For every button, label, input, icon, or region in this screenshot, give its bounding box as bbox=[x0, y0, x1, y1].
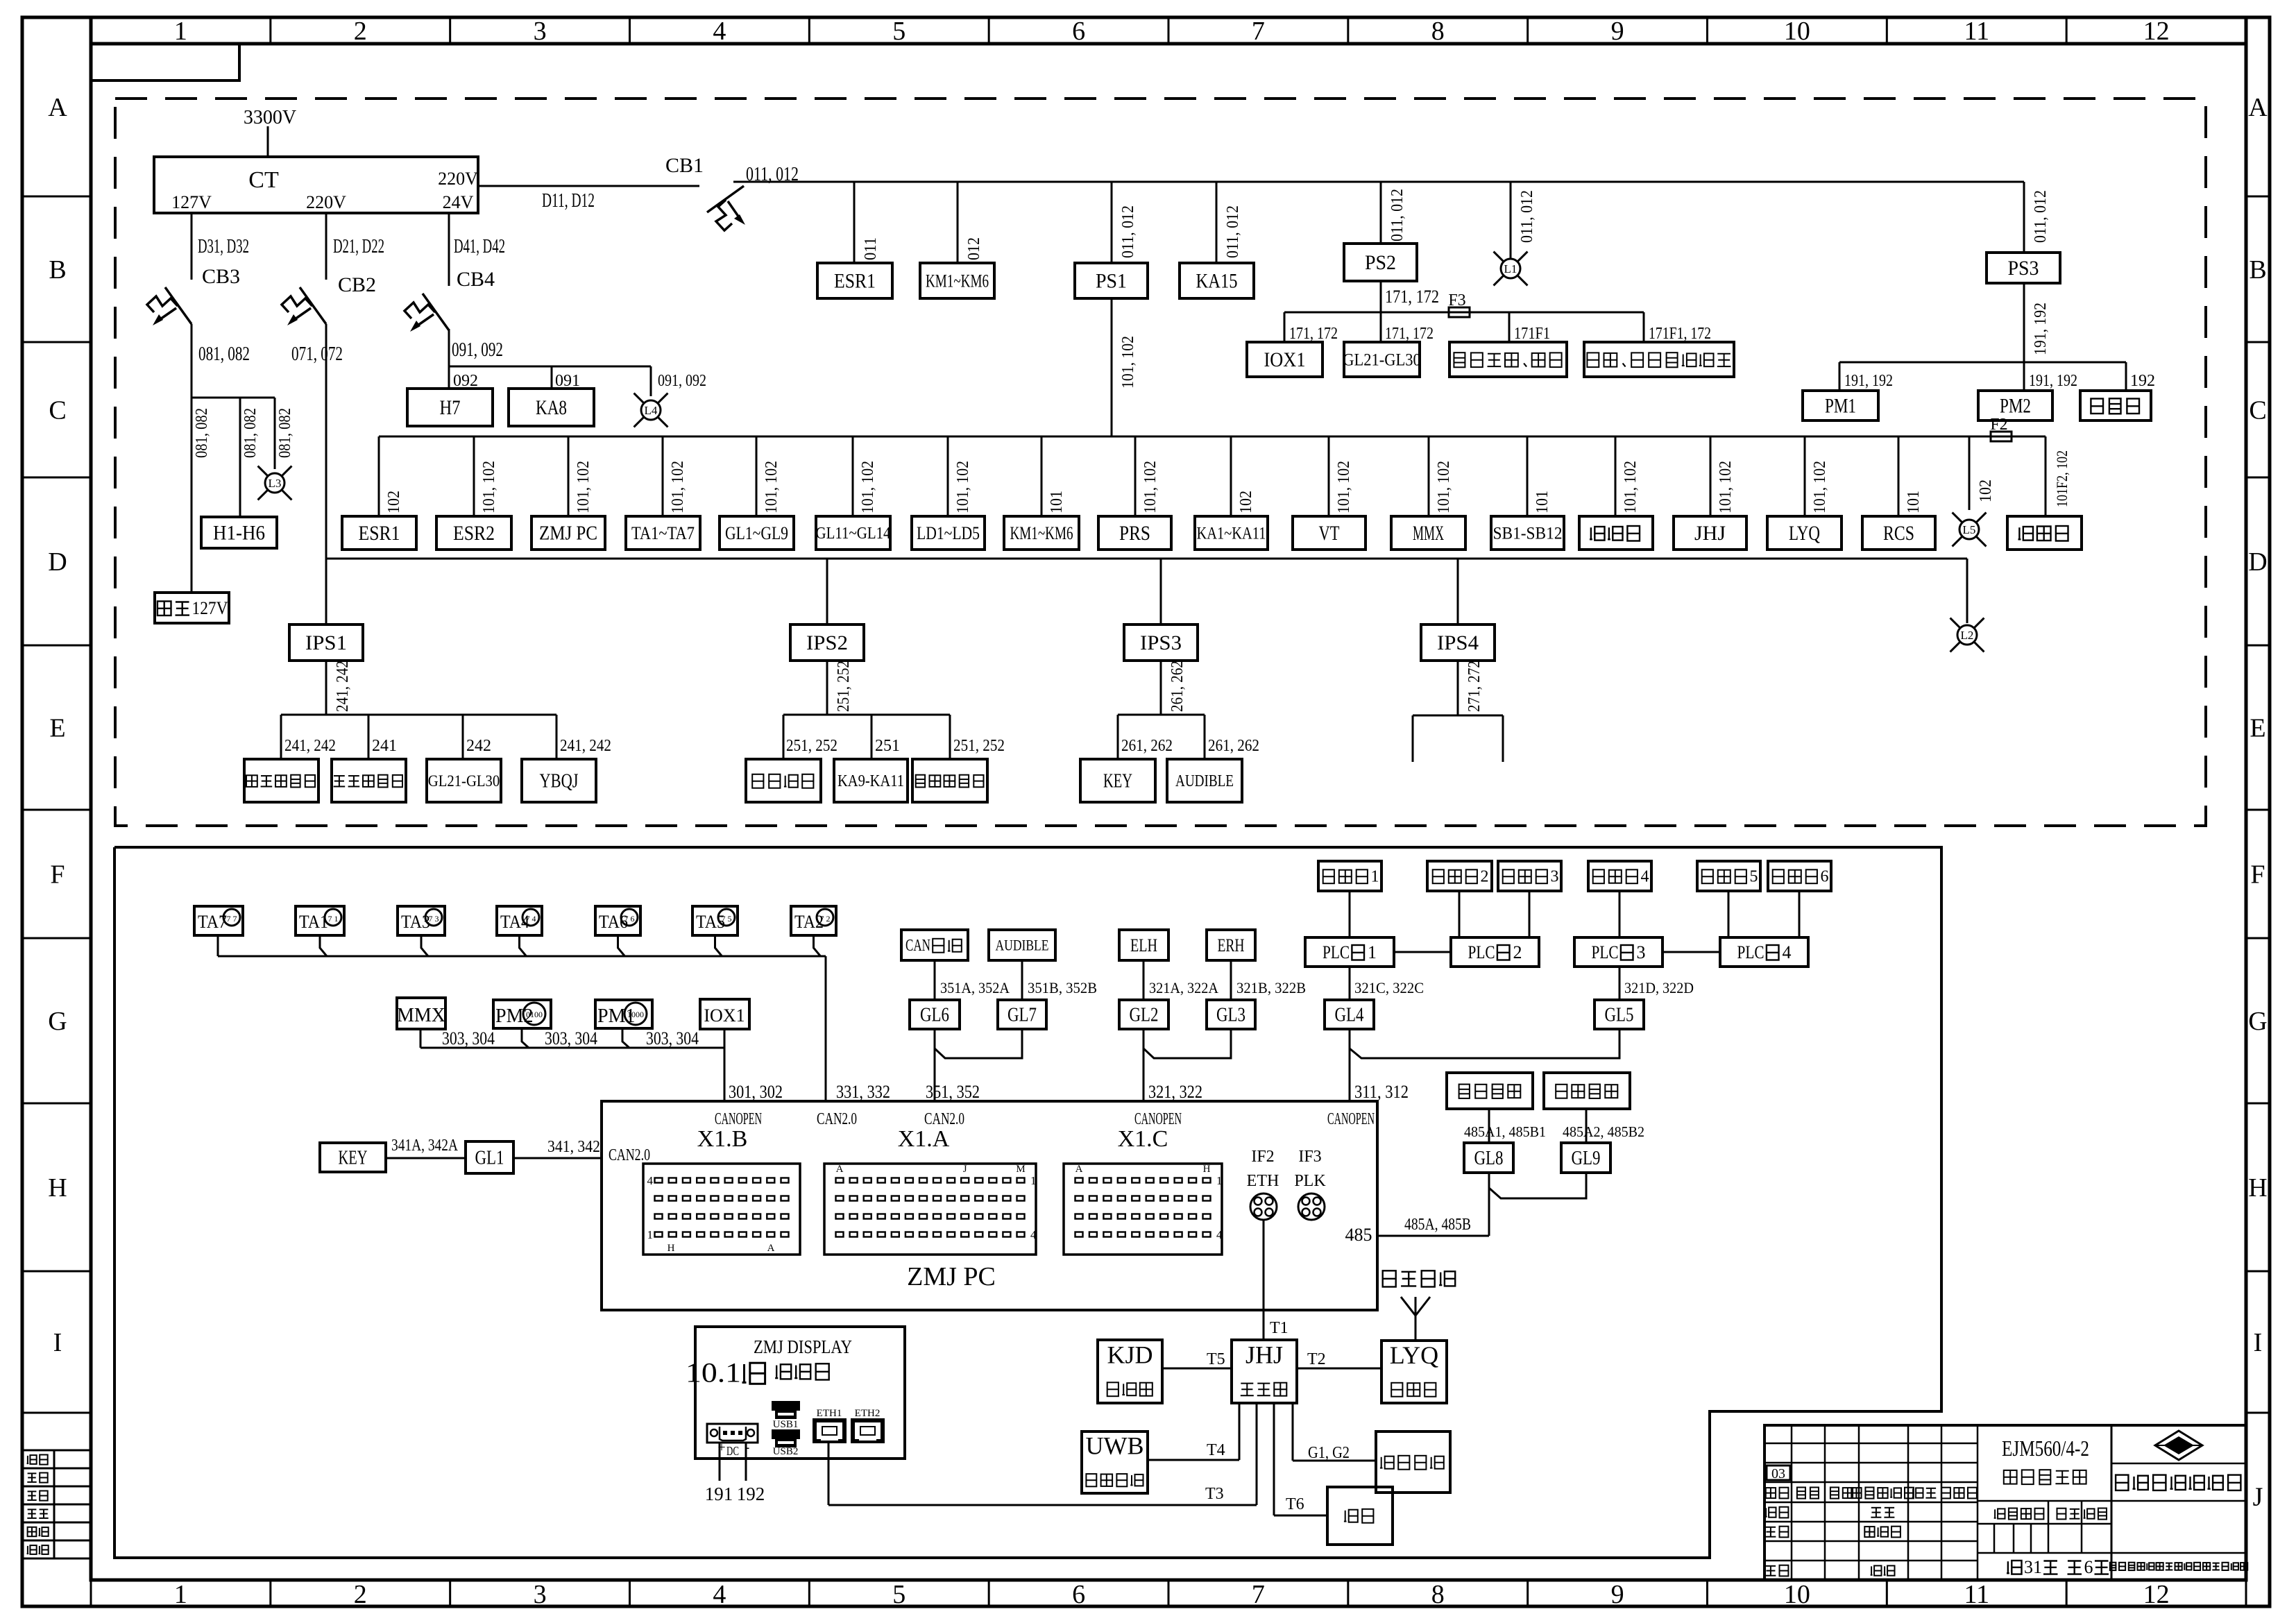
svg-text:IPS3: IPS3 bbox=[1140, 631, 1182, 654]
svg-text:J: J bbox=[963, 1164, 967, 1175]
svg-text:H: H bbox=[2248, 1173, 2267, 1203]
svg-text:241: 241 bbox=[372, 737, 397, 755]
svg-text:F: F bbox=[50, 860, 65, 890]
svg-text:127V: 127V bbox=[171, 192, 212, 212]
svg-text:171F1, 172: 171F1, 172 bbox=[1649, 325, 1711, 343]
svg-text:301, 302: 301, 302 bbox=[729, 1082, 783, 1102]
svg-text:1000: 1000 bbox=[627, 1010, 644, 1019]
svg-text:7 2: 7 2 bbox=[820, 914, 831, 924]
svg-text:6: 6 bbox=[1821, 868, 1829, 886]
svg-text:321C, 322C: 321C, 322C bbox=[1354, 979, 1424, 996]
svg-text:251, 252: 251, 252 bbox=[835, 661, 853, 712]
svg-text:192: 192 bbox=[2130, 372, 2155, 390]
svg-text:SB1-SB12: SB1-SB12 bbox=[1493, 525, 1563, 543]
svg-text:PLC: PLC bbox=[1592, 942, 1619, 962]
svg-text:011, 012: 011, 012 bbox=[1119, 205, 1137, 258]
svg-text:485A1, 485B1: 485A1, 485B1 bbox=[1464, 1123, 1546, 1140]
svg-text:485A2, 485B2: 485A2, 485B2 bbox=[1563, 1123, 1644, 1140]
svg-text:JHJ: JHJ bbox=[1245, 1341, 1283, 1369]
svg-text:101, 102: 101, 102 bbox=[1119, 336, 1137, 389]
svg-text:081, 082: 081, 082 bbox=[198, 343, 250, 365]
svg-text:ESR2: ESR2 bbox=[453, 522, 495, 545]
svg-text:3: 3 bbox=[534, 17, 547, 46]
svg-text:L5: L5 bbox=[1963, 523, 1976, 536]
svg-text:GL3: GL3 bbox=[1216, 1005, 1245, 1026]
svg-text:PS2: PS2 bbox=[1365, 251, 1396, 274]
svg-text:ZMJ PC: ZMJ PC bbox=[907, 1262, 996, 1291]
svg-text:KA8: KA8 bbox=[536, 396, 567, 419]
svg-text:351A, 352A: 351A, 352A bbox=[940, 979, 1010, 996]
svg-text:251: 251 bbox=[875, 737, 900, 755]
svg-text:IPS4: IPS4 bbox=[1437, 631, 1479, 654]
svg-text:101, 102: 101, 102 bbox=[480, 461, 498, 513]
svg-text:KEY: KEY bbox=[339, 1148, 368, 1169]
svg-text:5: 5 bbox=[892, 17, 905, 46]
svg-text:101, 102: 101, 102 bbox=[1811, 461, 1829, 513]
svg-text:EJM560/4-2: EJM560/4-2 bbox=[2002, 1436, 2089, 1461]
svg-text:4: 4 bbox=[713, 17, 726, 46]
svg-text:F: F bbox=[2250, 860, 2265, 890]
svg-text:03: 03 bbox=[1771, 1466, 1785, 1481]
svg-text:YBQJ: YBQJ bbox=[540, 771, 579, 792]
svg-text:CB4: CB4 bbox=[457, 268, 495, 291]
svg-text:311, 312: 311, 312 bbox=[1354, 1082, 1409, 1102]
svg-text:IOX1: IOX1 bbox=[1264, 348, 1306, 371]
svg-text:D: D bbox=[2248, 547, 2267, 577]
svg-text:12: 12 bbox=[2143, 1580, 2170, 1609]
svg-text:2: 2 bbox=[1513, 942, 1522, 962]
svg-text:H1-H6: H1-H6 bbox=[213, 522, 265, 545]
svg-text:ESR1: ESR1 bbox=[359, 522, 400, 545]
svg-text:LD1~LD5: LD1~LD5 bbox=[917, 523, 980, 543]
svg-text:KEY: KEY bbox=[1103, 771, 1132, 792]
svg-text:011, 012: 011, 012 bbox=[2032, 190, 2050, 243]
svg-text:11: 11 bbox=[1964, 17, 1990, 46]
svg-text:261, 262: 261, 262 bbox=[1121, 737, 1173, 755]
svg-text:AUDIBLE: AUDIBLE bbox=[996, 937, 1049, 954]
svg-text:B: B bbox=[2249, 255, 2266, 284]
svg-text:IPS1: IPS1 bbox=[305, 631, 347, 654]
svg-text:171F1: 171F1 bbox=[1514, 325, 1550, 343]
svg-text:341A, 342A: 341A, 342A bbox=[391, 1137, 459, 1155]
svg-text:T1: T1 bbox=[1270, 1319, 1289, 1337]
svg-text:I: I bbox=[53, 1328, 62, 1357]
svg-text:011, 012: 011, 012 bbox=[1518, 190, 1536, 243]
svg-text:DC: DC bbox=[726, 1444, 739, 1458]
svg-text:101: 101 bbox=[1048, 491, 1066, 513]
svg-text:101, 102: 101, 102 bbox=[954, 461, 972, 513]
svg-text:7 4: 7 4 bbox=[526, 914, 536, 924]
svg-text:485: 485 bbox=[1345, 1225, 1372, 1245]
svg-text:PS1: PS1 bbox=[1096, 270, 1127, 293]
svg-text:PM1: PM1 bbox=[1825, 395, 1856, 418]
svg-text:A: A bbox=[836, 1164, 844, 1175]
svg-text:011: 011 bbox=[862, 237, 880, 260]
svg-text:3: 3 bbox=[1551, 868, 1559, 886]
svg-text:USB1: USB1 bbox=[773, 1419, 799, 1430]
svg-text:7 5: 7 5 bbox=[722, 914, 732, 924]
svg-text:AUDIBLE: AUDIBLE bbox=[1175, 772, 1234, 790]
svg-text:7: 7 bbox=[1252, 17, 1265, 46]
svg-text:101, 102: 101, 102 bbox=[859, 461, 877, 513]
svg-text:D41, D42: D41, D42 bbox=[454, 236, 505, 257]
svg-text:4: 4 bbox=[1641, 868, 1649, 886]
svg-text:D: D bbox=[48, 547, 67, 577]
svg-text:101, 102: 101, 102 bbox=[1622, 461, 1640, 513]
svg-text:102: 102 bbox=[1237, 491, 1255, 513]
svg-text:101, 102: 101, 102 bbox=[1335, 461, 1353, 513]
svg-text:303, 304: 303, 304 bbox=[545, 1028, 597, 1048]
svg-text:251, 252: 251, 252 bbox=[786, 737, 837, 755]
svg-text:X1.C: X1.C bbox=[1118, 1126, 1168, 1152]
svg-text:31: 31 bbox=[2024, 1557, 2042, 1577]
svg-text:4: 4 bbox=[713, 1580, 726, 1609]
svg-text:B: B bbox=[49, 255, 66, 284]
svg-text:ERH: ERH bbox=[1218, 935, 1245, 955]
svg-text:1: 1 bbox=[174, 1580, 187, 1609]
svg-text:PM2: PM2 bbox=[2000, 395, 2031, 418]
svg-text:ETH2: ETH2 bbox=[855, 1408, 881, 1419]
svg-text:GL4: GL4 bbox=[1335, 1005, 1364, 1026]
svg-text:F3: F3 bbox=[1448, 291, 1465, 309]
svg-text:102: 102 bbox=[385, 491, 403, 513]
svg-text:M: M bbox=[1016, 1164, 1025, 1175]
svg-text:GL9: GL9 bbox=[1572, 1148, 1601, 1169]
svg-text:CT: CT bbox=[248, 167, 279, 193]
svg-text:LYQ: LYQ bbox=[1390, 1341, 1438, 1369]
svg-text:3: 3 bbox=[1637, 942, 1646, 962]
svg-text:RCS: RCS bbox=[1883, 522, 1914, 545]
svg-text:MMX: MMX bbox=[1413, 522, 1444, 545]
svg-text:10: 10 bbox=[1784, 17, 1810, 46]
svg-text:4: 4 bbox=[1216, 1228, 1223, 1241]
svg-text:321B, 322B: 321B, 322B bbox=[1236, 979, 1306, 996]
svg-text:A: A bbox=[2248, 93, 2268, 122]
svg-text:G1, G2: G1, G2 bbox=[1308, 1444, 1350, 1462]
svg-text:241, 242: 241, 242 bbox=[284, 737, 336, 755]
svg-text:IOX1: IOX1 bbox=[704, 1005, 745, 1026]
svg-text:E: E bbox=[2250, 714, 2265, 743]
svg-text:T3: T3 bbox=[1205, 1485, 1224, 1503]
svg-text:9: 9 bbox=[1611, 17, 1624, 46]
svg-text:6: 6 bbox=[1072, 17, 1085, 46]
svg-text:331, 332: 331, 332 bbox=[836, 1082, 890, 1102]
svg-text:101, 102: 101, 102 bbox=[669, 461, 687, 513]
svg-text:H: H bbox=[1203, 1164, 1211, 1175]
svg-text:D21, D22: D21, D22 bbox=[333, 236, 384, 257]
svg-text:KM1~KM6: KM1~KM6 bbox=[1010, 523, 1073, 543]
svg-text:1: 1 bbox=[174, 17, 187, 46]
svg-text:ZMJ PC: ZMJ PC bbox=[539, 523, 597, 545]
svg-text:VT: VT bbox=[1319, 522, 1340, 545]
svg-text:102: 102 bbox=[1977, 479, 1995, 502]
svg-text:CAN2.0: CAN2.0 bbox=[609, 1146, 650, 1164]
svg-text:12: 12 bbox=[2143, 17, 2170, 46]
svg-text:KA1~KA11: KA1~KA11 bbox=[1197, 525, 1266, 543]
svg-text:242: 242 bbox=[466, 737, 491, 755]
svg-text:011, 012: 011, 012 bbox=[1388, 189, 1406, 241]
svg-text:CB2: CB2 bbox=[338, 273, 376, 296]
svg-text:191, 192: 191, 192 bbox=[2032, 303, 2050, 355]
svg-text:191, 192: 191, 192 bbox=[1844, 372, 1893, 390]
svg-text:CAN: CAN bbox=[905, 937, 930, 955]
svg-text:GL5: GL5 bbox=[1605, 1005, 1634, 1026]
svg-text:9: 9 bbox=[1611, 1580, 1624, 1609]
svg-text:7 1: 7 1 bbox=[328, 914, 339, 924]
svg-text:4: 4 bbox=[1030, 1228, 1037, 1241]
svg-text:L4: L4 bbox=[645, 404, 658, 417]
svg-text:LYQ: LYQ bbox=[1789, 522, 1820, 545]
svg-text:127V: 127V bbox=[192, 598, 228, 618]
svg-text:G: G bbox=[2248, 1007, 2267, 1036]
svg-text:5: 5 bbox=[892, 1580, 905, 1609]
svg-text:191: 191 bbox=[705, 1484, 733, 1504]
svg-text:485A, 485B: 485A, 485B bbox=[1404, 1216, 1471, 1234]
svg-text:I: I bbox=[2254, 1328, 2263, 1357]
svg-text:101, 102: 101, 102 bbox=[575, 461, 593, 513]
svg-text:GL2: GL2 bbox=[1130, 1005, 1159, 1026]
svg-text:271, 272: 271, 272 bbox=[1465, 661, 1483, 712]
svg-text:351, 352: 351, 352 bbox=[926, 1082, 980, 1102]
svg-text:CB3: CB3 bbox=[202, 265, 240, 288]
svg-text:IPS2: IPS2 bbox=[806, 631, 848, 654]
svg-text:T4: T4 bbox=[1207, 1441, 1225, 1459]
svg-text:D31, D32: D31, D32 bbox=[198, 236, 249, 257]
svg-text:GL7: GL7 bbox=[1007, 1005, 1037, 1026]
svg-text:PLC: PLC bbox=[1468, 942, 1495, 962]
svg-text:3: 3 bbox=[534, 1580, 547, 1609]
svg-text:T5: T5 bbox=[1207, 1350, 1225, 1368]
svg-text:KA9-KA11: KA9-KA11 bbox=[837, 772, 904, 790]
svg-text:091, 092: 091, 092 bbox=[658, 372, 706, 390]
svg-text:191, 192: 191, 192 bbox=[2029, 372, 2077, 390]
svg-text:081, 082: 081, 082 bbox=[193, 408, 211, 458]
svg-text:IF2: IF2 bbox=[1251, 1148, 1274, 1166]
svg-text:CB1: CB1 bbox=[665, 154, 704, 177]
svg-text:5: 5 bbox=[1750, 868, 1758, 886]
svg-text:E: E bbox=[49, 714, 65, 743]
svg-text:ETH1: ETH1 bbox=[817, 1408, 842, 1419]
svg-text:10: 10 bbox=[1784, 1580, 1810, 1609]
svg-text:321D, 322D: 321D, 322D bbox=[1624, 979, 1694, 996]
svg-text:PLK: PLK bbox=[1294, 1172, 1326, 1190]
svg-text:8: 8 bbox=[1431, 1580, 1445, 1609]
svg-text:7 3: 7 3 bbox=[429, 914, 439, 924]
svg-text:ESR1: ESR1 bbox=[834, 270, 876, 293]
svg-text:A: A bbox=[1075, 1164, 1083, 1175]
svg-text:C: C bbox=[49, 396, 66, 425]
svg-text:H: H bbox=[667, 1243, 675, 1254]
svg-text:L2: L2 bbox=[1961, 629, 1974, 642]
svg-text:ELH: ELH bbox=[1130, 935, 1157, 955]
svg-text:1: 1 bbox=[647, 1228, 654, 1241]
svg-text:10.1: 10.1 bbox=[686, 1357, 741, 1388]
svg-text:X1.B: X1.B bbox=[697, 1126, 748, 1152]
svg-text:JHJ: JHJ bbox=[1694, 522, 1726, 545]
svg-text:GL8: GL8 bbox=[1474, 1148, 1504, 1169]
svg-text:2: 2 bbox=[1481, 868, 1489, 886]
svg-text:F2: F2 bbox=[1990, 416, 2007, 434]
svg-text:091, 092: 091, 092 bbox=[452, 339, 503, 361]
svg-text:071, 072: 071, 072 bbox=[291, 343, 343, 365]
svg-text:2: 2 bbox=[354, 17, 367, 46]
svg-text:PLC: PLC bbox=[1737, 942, 1764, 962]
svg-text:GL1~GL9: GL1~GL9 bbox=[725, 523, 788, 543]
svg-text:081, 082: 081, 082 bbox=[241, 408, 260, 458]
svg-text:1: 1 bbox=[1216, 1174, 1223, 1187]
svg-text:192: 192 bbox=[737, 1484, 765, 1504]
svg-text:ZMJ DISPLAY: ZMJ DISPLAY bbox=[754, 1336, 852, 1357]
svg-text:A: A bbox=[767, 1243, 775, 1254]
svg-text:220V: 220V bbox=[306, 192, 346, 212]
svg-text:171, 172: 171, 172 bbox=[1385, 287, 1439, 307]
svg-text:1: 1 bbox=[1368, 942, 1377, 962]
svg-text:7: 7 bbox=[1252, 1580, 1265, 1609]
svg-text:4: 4 bbox=[647, 1174, 654, 1187]
svg-text:T2: T2 bbox=[1307, 1350, 1326, 1368]
svg-text:081, 082: 081, 082 bbox=[276, 408, 294, 458]
svg-text:220V: 220V bbox=[438, 169, 478, 189]
svg-text:TA1: TA1 bbox=[299, 912, 328, 932]
svg-text:101, 102: 101, 102 bbox=[1141, 461, 1159, 513]
svg-text:101, 102: 101, 102 bbox=[1435, 461, 1453, 513]
svg-text:H7: H7 bbox=[440, 396, 461, 419]
svg-text:7 7: 7 7 bbox=[227, 914, 237, 924]
svg-text:1: 1 bbox=[1371, 868, 1379, 886]
svg-text:1: 1 bbox=[1030, 1174, 1037, 1187]
svg-text:101, 102: 101, 102 bbox=[763, 461, 781, 513]
svg-text:D11, D12: D11, D12 bbox=[542, 190, 595, 212]
svg-text:6: 6 bbox=[1072, 1580, 1085, 1609]
svg-text:341, 342: 341, 342 bbox=[547, 1138, 600, 1156]
svg-text:J: J bbox=[2253, 1483, 2263, 1512]
svg-text:012: 012 bbox=[965, 237, 983, 260]
svg-text:011, 012: 011, 012 bbox=[1224, 205, 1242, 258]
svg-text:24V: 24V bbox=[443, 192, 474, 212]
svg-text:GL21-GL30: GL21-GL30 bbox=[428, 772, 500, 790]
svg-text:TA7: TA7 bbox=[198, 912, 227, 932]
svg-text:0100: 0100 bbox=[526, 1010, 543, 1019]
svg-text:6: 6 bbox=[2084, 1557, 2093, 1577]
svg-text:CANOPEN: CANOPEN bbox=[1327, 1110, 1375, 1128]
svg-text:303, 304: 303, 304 bbox=[442, 1028, 495, 1048]
svg-text:C: C bbox=[2249, 396, 2266, 425]
svg-text:T6: T6 bbox=[1286, 1495, 1304, 1513]
svg-text:GL1: GL1 bbox=[475, 1148, 504, 1169]
svg-text:PLC: PLC bbox=[1323, 942, 1350, 962]
svg-text:241, 242: 241, 242 bbox=[334, 661, 352, 712]
svg-text:L1: L1 bbox=[1504, 262, 1517, 275]
svg-text:MMX: MMX bbox=[397, 1005, 445, 1026]
svg-text:101: 101 bbox=[1533, 491, 1551, 513]
svg-text:241, 242: 241, 242 bbox=[560, 737, 611, 755]
svg-text:GL21-GL30: GL21-GL30 bbox=[1343, 351, 1421, 370]
svg-text:KM1~KM6: KM1~KM6 bbox=[926, 271, 989, 291]
svg-text:2: 2 bbox=[354, 1580, 367, 1609]
svg-text:KJD: KJD bbox=[1107, 1341, 1153, 1369]
svg-text:11: 11 bbox=[1964, 1580, 1990, 1609]
svg-text:101: 101 bbox=[1905, 491, 1923, 513]
svg-text:PRS: PRS bbox=[1119, 522, 1150, 545]
svg-text:L3: L3 bbox=[269, 477, 282, 490]
svg-text:H: H bbox=[48, 1173, 67, 1203]
svg-text:GL6: GL6 bbox=[920, 1005, 949, 1026]
svg-text:261, 262: 261, 262 bbox=[1168, 661, 1187, 712]
svg-text:USB2: USB2 bbox=[773, 1446, 799, 1457]
svg-text:101, 102: 101, 102 bbox=[1717, 461, 1735, 513]
svg-text:PS3: PS3 bbox=[2008, 257, 2039, 280]
svg-text:101F2, 102: 101F2, 102 bbox=[2053, 450, 2070, 507]
svg-text:KA15: KA15 bbox=[1196, 270, 1238, 293]
svg-text:321A, 322A: 321A, 322A bbox=[1149, 979, 1218, 996]
svg-text:IF3: IF3 bbox=[1298, 1148, 1321, 1166]
svg-text:171, 172: 171, 172 bbox=[1289, 325, 1338, 343]
svg-text:303, 304: 303, 304 bbox=[646, 1028, 699, 1048]
svg-text:X1.A: X1.A bbox=[898, 1126, 950, 1152]
svg-text:171, 172: 171, 172 bbox=[1385, 325, 1434, 343]
svg-text:G: G bbox=[48, 1007, 67, 1036]
svg-text:011, 012: 011, 012 bbox=[746, 164, 799, 185]
svg-text:CAN2.0: CAN2.0 bbox=[817, 1110, 857, 1128]
svg-text:A: A bbox=[48, 93, 67, 122]
svg-text:7 6: 7 6 bbox=[624, 914, 635, 924]
svg-text:261, 262: 261, 262 bbox=[1208, 737, 1259, 755]
svg-text:351B, 352B: 351B, 352B bbox=[1028, 979, 1097, 996]
svg-text:GL11~GL14: GL11~GL14 bbox=[816, 525, 891, 543]
svg-text:321, 322: 321, 322 bbox=[1148, 1082, 1202, 1102]
svg-text:8: 8 bbox=[1431, 17, 1445, 46]
svg-text:UWB: UWB bbox=[1086, 1432, 1144, 1460]
svg-text:251, 252: 251, 252 bbox=[953, 737, 1005, 755]
svg-text:3300V: 3300V bbox=[244, 107, 296, 128]
svg-text:4: 4 bbox=[1783, 942, 1792, 962]
svg-text:ETH: ETH bbox=[1247, 1172, 1279, 1190]
svg-text:TA1~TA7: TA1~TA7 bbox=[631, 523, 695, 543]
